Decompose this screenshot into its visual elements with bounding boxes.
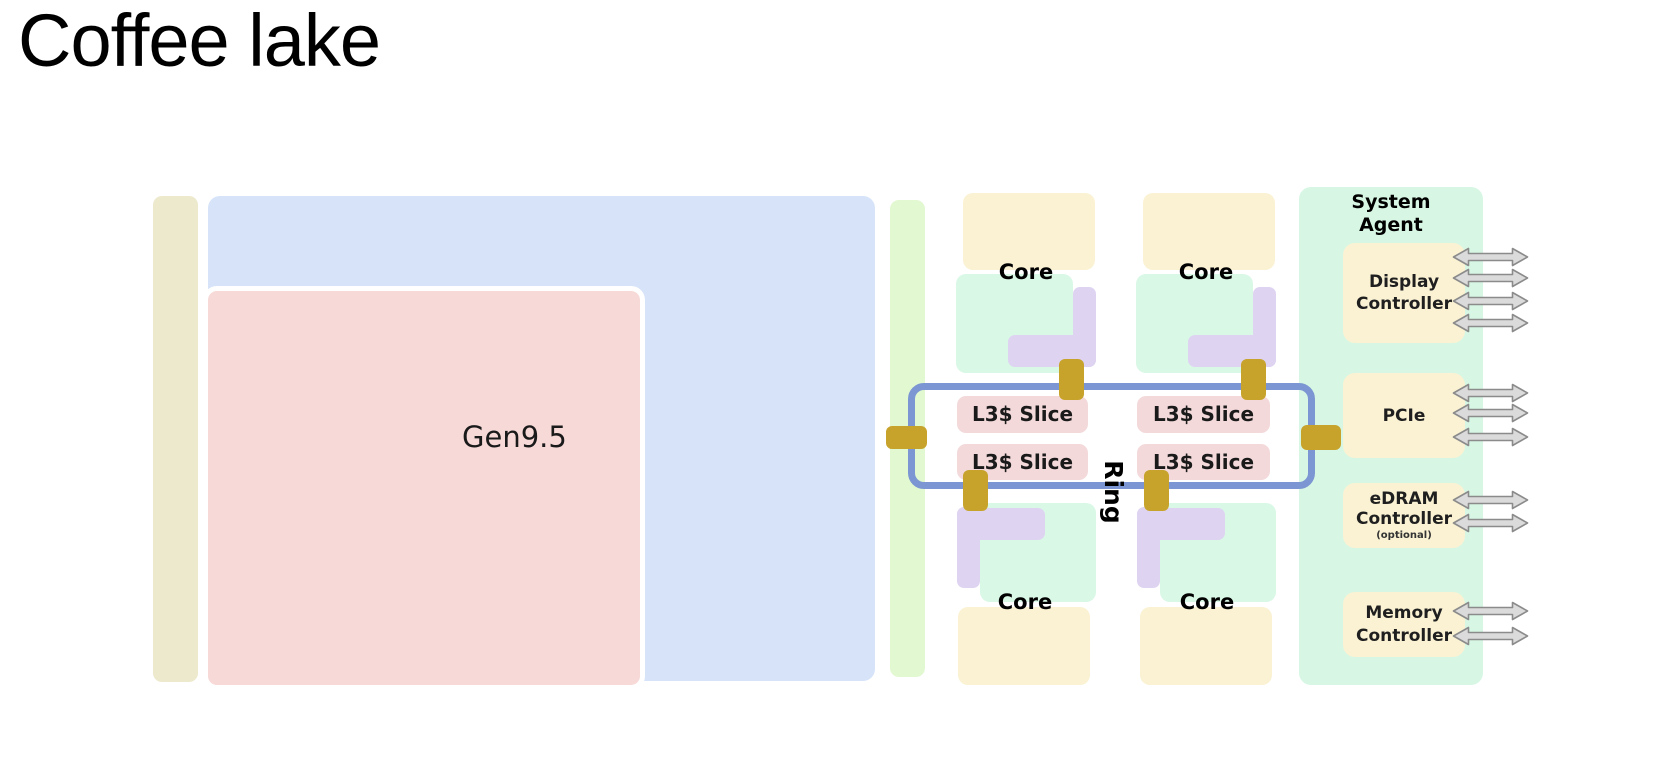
double-arrow-icon: [1452, 291, 1529, 311]
ring-stop-top-left: [1059, 359, 1084, 400]
double-arrow-icon: [1452, 601, 1529, 621]
edram-controller-label: eDRAM Controller: [1343, 489, 1465, 529]
core-label: Core: [985, 592, 1065, 613]
double-arrow-icon: [1452, 513, 1529, 533]
ring-stop-bottom-right: [1144, 470, 1169, 511]
double-arrow-icon: [1452, 313, 1529, 333]
system-agent-title-text: System Agent: [1336, 191, 1446, 237]
double-arrow-icon: [1452, 403, 1529, 423]
core-tile-top-right: Core: [1136, 193, 1276, 375]
core-cream-block: [1140, 607, 1272, 685]
core-cream-block: [963, 193, 1095, 270]
ring-stop-top-right: [1241, 359, 1266, 400]
core-cream-block: [1143, 193, 1275, 270]
ring-stop-right: [1301, 425, 1341, 450]
ring-stop-left: [886, 426, 927, 449]
ring-stop-bottom-left: [963, 470, 988, 511]
ring-label: Ring: [1100, 452, 1126, 532]
core-tile-bottom-left: Core: [957, 503, 1097, 685]
core-cream-block: [958, 607, 1090, 685]
pcie-label: PCIe: [1383, 405, 1426, 427]
display-controller-box: Display Controller: [1343, 243, 1465, 343]
gpu-gen95-block: [203, 286, 645, 690]
left-edge-strip: [153, 196, 198, 682]
double-arrow-icon: [1452, 247, 1529, 267]
core-tile-top-left: Core: [956, 193, 1096, 375]
core-label: Core: [1167, 592, 1247, 613]
pcie-box: PCIe: [1343, 373, 1465, 458]
memory-controller-label: Memory Controller: [1343, 602, 1465, 648]
double-arrow-icon: [1452, 383, 1529, 403]
memory-controller-box: Memory Controller: [1343, 592, 1465, 657]
display-controller-label: Display Controller: [1343, 271, 1465, 315]
double-arrow-icon: [1452, 268, 1529, 288]
edram-optional-note: (optional): [1376, 529, 1432, 542]
die-diagram: Gen9.5 Core Core Core Core System Agent …: [0, 0, 1658, 784]
double-arrow-icon: [1452, 626, 1529, 646]
core-tile-bottom-right: Core: [1137, 503, 1277, 685]
double-arrow-icon: [1452, 490, 1529, 510]
core-label: Core: [986, 262, 1066, 283]
core-purple-l-foot: [1137, 508, 1225, 540]
gpu-gen95-label: Gen9.5: [462, 423, 567, 452]
core-label: Core: [1166, 262, 1246, 283]
double-arrow-icon: [1452, 427, 1529, 447]
core-purple-l-foot: [957, 508, 1045, 540]
edram-controller-box: eDRAM Controller (optional): [1343, 483, 1465, 548]
system-agent-title: System Agent: [1299, 191, 1483, 237]
